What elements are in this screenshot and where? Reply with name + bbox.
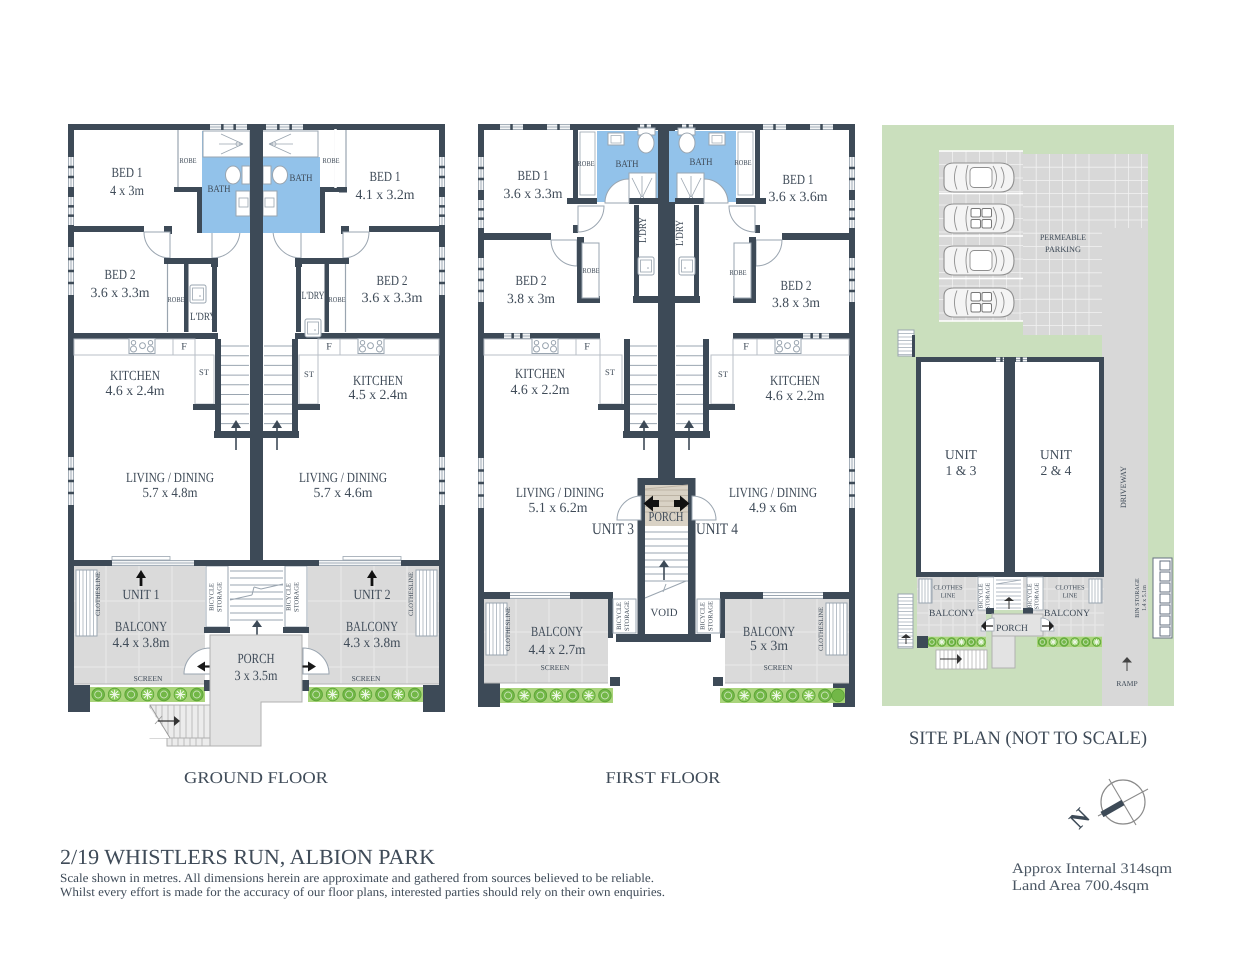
svg-text:FIRST FLOOR: FIRST FLOOR bbox=[606, 768, 721, 787]
svg-text:4.1 x 3.2m: 4.1 x 3.2m bbox=[356, 188, 415, 203]
svg-text:3.6 x 3.3m: 3.6 x 3.3m bbox=[362, 291, 423, 306]
svg-text:ST: ST bbox=[718, 369, 729, 379]
svg-text:BALCONY: BALCONY bbox=[346, 620, 398, 635]
svg-text:STORAGE: STORAGE bbox=[986, 582, 992, 609]
svg-text:BED 2: BED 2 bbox=[377, 274, 408, 289]
svg-text:Scale shown in metres. All dim: Scale shown in metres. All dimensions he… bbox=[60, 871, 654, 885]
svg-text:BIN STORAGE: BIN STORAGE bbox=[1135, 578, 1141, 618]
svg-text:LIVING / DINING: LIVING / DINING bbox=[516, 486, 604, 501]
svg-text:CLOTHES: CLOTHES bbox=[1055, 585, 1085, 592]
svg-text:SCREEN: SCREEN bbox=[541, 663, 570, 672]
svg-text:DRIVEWAY: DRIVEWAY bbox=[1119, 466, 1128, 508]
svg-text:ROBE: ROBE bbox=[730, 268, 747, 277]
svg-text:5.1 x 6.2m: 5.1 x 6.2m bbox=[529, 501, 588, 516]
svg-text:CLOTHESLINE: CLOTHESLINE bbox=[95, 572, 102, 616]
svg-text:KITCHEN: KITCHEN bbox=[515, 367, 565, 382]
svg-text:GROUND FLOOR: GROUND FLOOR bbox=[184, 768, 328, 787]
svg-text:UNIT: UNIT bbox=[945, 447, 978, 462]
svg-text:PORCH: PORCH bbox=[996, 624, 1028, 634]
svg-text:L'DRY: L'DRY bbox=[190, 311, 216, 323]
svg-text:UNIT 1: UNIT 1 bbox=[123, 588, 160, 603]
svg-text:UNIT 4: UNIT 4 bbox=[696, 521, 738, 538]
svg-text:UNIT: UNIT bbox=[1040, 447, 1073, 462]
svg-text:BED 1: BED 1 bbox=[112, 166, 143, 181]
svg-text:5.7 x 4.8m: 5.7 x 4.8m bbox=[143, 486, 198, 501]
svg-text:RAMP: RAMP bbox=[1116, 679, 1137, 688]
svg-text:SITE PLAN (NOT TO SCALE): SITE PLAN (NOT TO SCALE) bbox=[909, 728, 1147, 749]
svg-text:SCREEN: SCREEN bbox=[764, 663, 793, 672]
svg-text:LIVING / DINING: LIVING / DINING bbox=[729, 486, 817, 501]
svg-text:2/19 WHISTLERS RUN, ALBION PAR: 2/19 WHISTLERS RUN, ALBION PARK bbox=[60, 845, 435, 869]
svg-text:2 & 4: 2 & 4 bbox=[1041, 463, 1072, 478]
svg-text:L'DRY: L'DRY bbox=[674, 220, 686, 246]
svg-text:BICYCLE: BICYCLE bbox=[209, 583, 216, 611]
svg-text:STORAGE: STORAGE bbox=[624, 601, 631, 631]
svg-text:CLOTHES: CLOTHES bbox=[933, 585, 963, 592]
svg-text:4.5 x 2.4m: 4.5 x 2.4m bbox=[349, 388, 408, 403]
svg-text:ROBE: ROBE bbox=[583, 266, 600, 275]
svg-text:1 & 3: 1 & 3 bbox=[946, 463, 977, 478]
svg-text:1.4 x 5.1m: 1.4 x 5.1m bbox=[1142, 585, 1148, 611]
svg-text:3.8 x 3m: 3.8 x 3m bbox=[772, 296, 820, 311]
svg-text:PERMEABLE: PERMEABLE bbox=[1040, 232, 1086, 242]
svg-text:4.9 x 6m: 4.9 x 6m bbox=[749, 501, 797, 516]
svg-text:ST: ST bbox=[304, 369, 315, 379]
svg-text:BALCONY: BALCONY bbox=[531, 625, 583, 640]
svg-text:PARKING: PARKING bbox=[1045, 244, 1081, 254]
svg-text:4.4 x 2.7m: 4.4 x 2.7m bbox=[529, 643, 586, 658]
svg-text:5 x 3m: 5 x 3m bbox=[750, 639, 788, 654]
svg-text:4 x 3m: 4 x 3m bbox=[110, 184, 144, 199]
svg-text:4.6 x 2.2m: 4.6 x 2.2m bbox=[511, 383, 570, 398]
svg-text:ROBE: ROBE bbox=[735, 158, 752, 167]
svg-text:F: F bbox=[326, 342, 332, 353]
svg-text:BALCONY: BALCONY bbox=[115, 620, 167, 635]
svg-text:STORAGE: STORAGE bbox=[1035, 582, 1041, 609]
svg-text:BATH: BATH bbox=[690, 157, 713, 168]
svg-text:PORCH: PORCH bbox=[649, 509, 684, 524]
svg-text:BICYCLE: BICYCLE bbox=[616, 602, 623, 630]
svg-text:3.6 x 3.6m: 3.6 x 3.6m bbox=[769, 190, 828, 205]
svg-text:BED 2: BED 2 bbox=[781, 279, 812, 294]
svg-text:SCREEN: SCREEN bbox=[134, 674, 163, 683]
svg-text:Approx Internal 314sqm: Approx Internal 314sqm bbox=[1012, 861, 1173, 877]
svg-text:KITCHEN: KITCHEN bbox=[353, 374, 403, 389]
svg-text:BALCONY: BALCONY bbox=[743, 625, 795, 640]
svg-text:BED 2: BED 2 bbox=[516, 274, 547, 289]
svg-text:LINE: LINE bbox=[1063, 593, 1078, 600]
svg-text:ST: ST bbox=[199, 367, 210, 377]
svg-text:BED 1: BED 1 bbox=[370, 170, 401, 185]
svg-text:CLOTHESLINE: CLOTHESLINE bbox=[408, 572, 415, 616]
svg-text:F: F bbox=[181, 342, 187, 353]
svg-text:BED 2: BED 2 bbox=[105, 268, 136, 283]
svg-text:CLOTHESLINE: CLOTHESLINE bbox=[818, 607, 825, 651]
svg-text:BICYCLE: BICYCLE bbox=[979, 583, 985, 608]
svg-text:F: F bbox=[584, 342, 590, 353]
svg-text:STORAGE: STORAGE bbox=[217, 582, 224, 612]
svg-text:4.6 x 2.2m: 4.6 x 2.2m bbox=[766, 389, 825, 404]
svg-text:3 x 3.5m: 3 x 3.5m bbox=[235, 669, 278, 684]
svg-text:BATH: BATH bbox=[290, 173, 313, 184]
svg-text:KITCHEN: KITCHEN bbox=[770, 374, 820, 389]
svg-text:L'DRY: L'DRY bbox=[637, 217, 649, 243]
svg-text:LINE: LINE bbox=[941, 593, 956, 600]
svg-text:ROBE: ROBE bbox=[578, 159, 595, 168]
svg-text:ROBE: ROBE bbox=[168, 295, 185, 304]
svg-text:BALCONY: BALCONY bbox=[929, 609, 975, 619]
svg-text:BICYCLE: BICYCLE bbox=[1028, 583, 1034, 608]
svg-text:ST: ST bbox=[605, 367, 616, 377]
svg-text:SCREEN: SCREEN bbox=[352, 674, 381, 683]
svg-text:5.7 x 4.6m: 5.7 x 4.6m bbox=[314, 486, 373, 501]
svg-text:ROBE: ROBE bbox=[323, 156, 340, 165]
svg-text:LIVING / DINING: LIVING / DINING bbox=[299, 471, 387, 486]
svg-text:ROBE: ROBE bbox=[329, 295, 346, 304]
svg-text:3.6 x 3.3m: 3.6 x 3.3m bbox=[91, 286, 150, 301]
svg-text:BALCONY: BALCONY bbox=[1044, 609, 1090, 619]
svg-text:4.6 x 2.4m: 4.6 x 2.4m bbox=[106, 384, 165, 399]
svg-text:UNIT 2: UNIT 2 bbox=[354, 588, 391, 603]
svg-text:BED 1: BED 1 bbox=[518, 169, 549, 184]
svg-text:STORAGE: STORAGE bbox=[708, 601, 715, 631]
svg-text:4.3 x 3.8m: 4.3 x 3.8m bbox=[344, 636, 401, 651]
svg-text:BED 1: BED 1 bbox=[783, 173, 814, 188]
svg-text:PORCH: PORCH bbox=[238, 652, 275, 667]
svg-text:STORAGE: STORAGE bbox=[294, 582, 301, 612]
svg-text:ROBE: ROBE bbox=[180, 156, 197, 165]
svg-text:L'DRY: L'DRY bbox=[302, 290, 325, 302]
svg-text:Whilst every effort is made fo: Whilst every effort is made for the accu… bbox=[60, 885, 665, 899]
svg-text:UNIT 3: UNIT 3 bbox=[592, 521, 634, 538]
svg-text:3.8 x 3m: 3.8 x 3m bbox=[507, 292, 555, 307]
svg-text:BATH: BATH bbox=[616, 159, 639, 170]
svg-text:LIVING / DINING: LIVING / DINING bbox=[126, 471, 214, 486]
svg-text:F: F bbox=[743, 342, 749, 353]
svg-text:KITCHEN: KITCHEN bbox=[110, 369, 160, 384]
svg-text:CLOTHESLINE: CLOTHESLINE bbox=[505, 607, 512, 651]
svg-text:BICYCLE: BICYCLE bbox=[286, 583, 293, 611]
svg-text:Land Area 700.4sqm: Land Area 700.4sqm bbox=[1012, 878, 1150, 894]
svg-text:BICYCLE: BICYCLE bbox=[700, 602, 707, 630]
svg-text:VOID: VOID bbox=[651, 607, 678, 619]
svg-text:4.4 x 3.8m: 4.4 x 3.8m bbox=[113, 636, 170, 651]
svg-text:3.6 x 3.3m: 3.6 x 3.3m bbox=[504, 187, 563, 202]
svg-text:BATH: BATH bbox=[208, 184, 231, 195]
